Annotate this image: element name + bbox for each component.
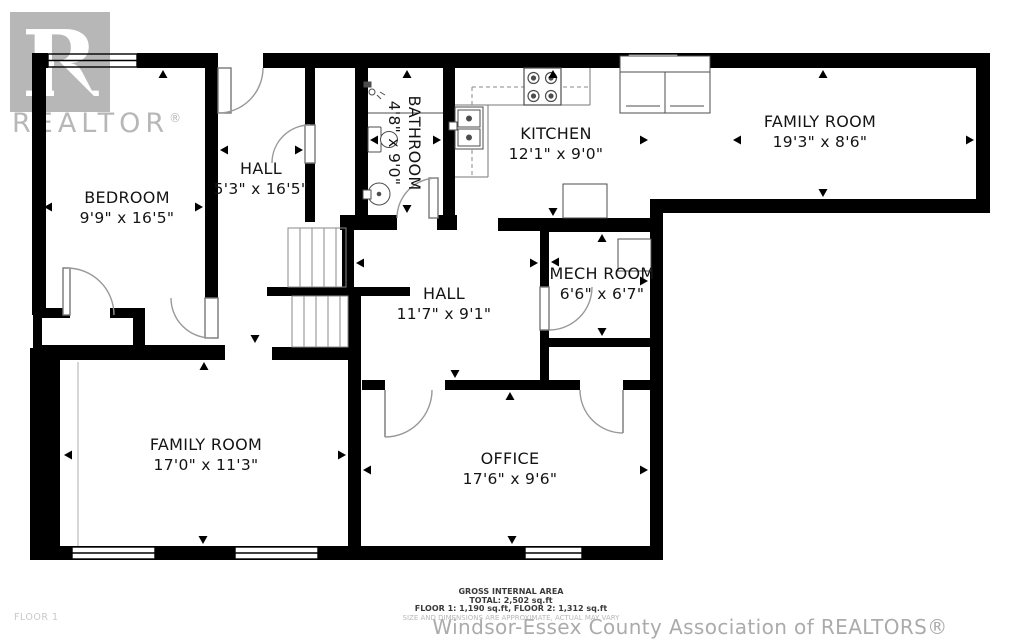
room-name: OFFICE [463,449,558,469]
dimension-arrow [508,536,517,544]
dimension-arrow [338,451,346,460]
realtor-logo-text: REALTOR® [12,108,212,139]
dimension-arrow [506,392,515,400]
floor-plan-canvas: BEDROOM 9'9" x 16'5" HALL 5'3" x 16'5" B… [0,0,1024,639]
dimension-arrow [195,203,203,212]
dimension-arrow [819,70,828,78]
dimension-arrow [200,362,209,370]
dimension-arrow [251,335,260,343]
dimension-arrow [530,259,538,268]
area-summary: GROSS INTERNAL AREA TOTAL: 2,502 sq.ft F… [311,588,711,622]
dimension-arrow [640,466,648,475]
stove-icon [524,68,561,105]
room-label-mech-room: MECH ROOM 6'6" x 6'7" [549,264,654,304]
room-name: HALL [214,159,309,179]
door-icon [171,298,218,338]
room-label-bathroom: BATHROOM 4'8" x 9'0" [384,96,424,191]
dimension-arrow [966,136,974,145]
area-disclaimer: SIZE AND DIMENSIONS ARE APPROXIMATE, ACT… [311,614,711,623]
window-icon [235,547,318,559]
dimension-arrow [363,466,371,475]
dishwasher-icon [563,184,607,218]
room-name: KITCHEN [509,124,604,144]
dimension-arrow [819,189,828,197]
room-label-family-room-upper: FAMILY ROOM 19'3" x 8'6" [764,112,876,152]
window-icon [72,547,155,559]
dimension-arrow [220,146,228,155]
room-dims: 17'6" x 9'6" [463,469,558,489]
dimension-arrow [733,136,741,145]
room-dims: 12'1" x 9'0" [509,144,604,164]
window-icon [525,547,582,559]
stairs-icon [288,228,348,347]
room-name: BEDROOM [80,188,175,208]
room-label-hall-upper: HALL 5'3" x 16'5" [214,159,309,199]
room-name: HALL [397,284,492,304]
dimension-arrow [598,234,607,242]
dimension-arrow [159,70,168,78]
room-name: BATHROOM [404,96,424,191]
room-label-bedroom: BEDROOM 9'9" x 16'5" [80,188,175,228]
room-dims: 4'8" x 9'0" [384,96,404,191]
door-icon [580,390,623,433]
sofa-icon [620,56,710,113]
dimension-arrow [403,70,412,78]
door-icon [272,125,315,163]
room-dims: 9'9" x 16'5" [80,208,175,228]
room-dims: 6'6" x 6'7" [549,284,654,304]
dimension-arrow [598,328,607,336]
dimension-arrow [549,208,558,216]
door-icon [63,268,114,315]
dimension-arrow [64,451,72,460]
floor-label: FLOOR 1 [14,612,59,623]
dimension-arrow [403,205,412,213]
floor-plan-svg [0,0,1024,639]
dimension-arrow [199,536,208,544]
room-name: FAMILY ROOM [150,435,262,455]
dimension-arrow [295,146,303,155]
realtor-logo-graphic: R [10,12,110,112]
room-label-kitchen: KITCHEN 12'1" x 9'0" [509,124,604,164]
room-label-hall-main: HALL 11'7" x 9'1" [397,284,492,324]
door-icon [385,390,432,437]
room-label-office: OFFICE 17'6" x 9'6" [463,449,558,489]
realtor-logo: R [10,12,110,112]
dimension-arrow [433,136,441,145]
room-name: MECH ROOM [549,264,654,284]
dimension-arrow [451,370,460,378]
room-dims: 17'0" x 11'3" [150,455,262,475]
room-dims: 19'3" x 8'6" [764,132,876,152]
dimension-arrow [640,136,648,145]
realtor-logo-word: REALTOR [12,108,169,139]
door-icon [218,68,263,113]
room-label-family-room-lower: FAMILY ROOM 17'0" x 11'3" [150,435,262,475]
room-dims: 11'7" x 9'1" [397,304,492,324]
area-floors: FLOOR 1: 1,190 sq.ft, FLOOR 2: 1,312 sq.… [311,605,711,614]
room-name: FAMILY ROOM [764,112,876,132]
dimension-arrow [356,259,364,268]
room-dims: 5'3" x 16'5" [214,179,309,199]
registered-symbol: ® [169,111,181,125]
